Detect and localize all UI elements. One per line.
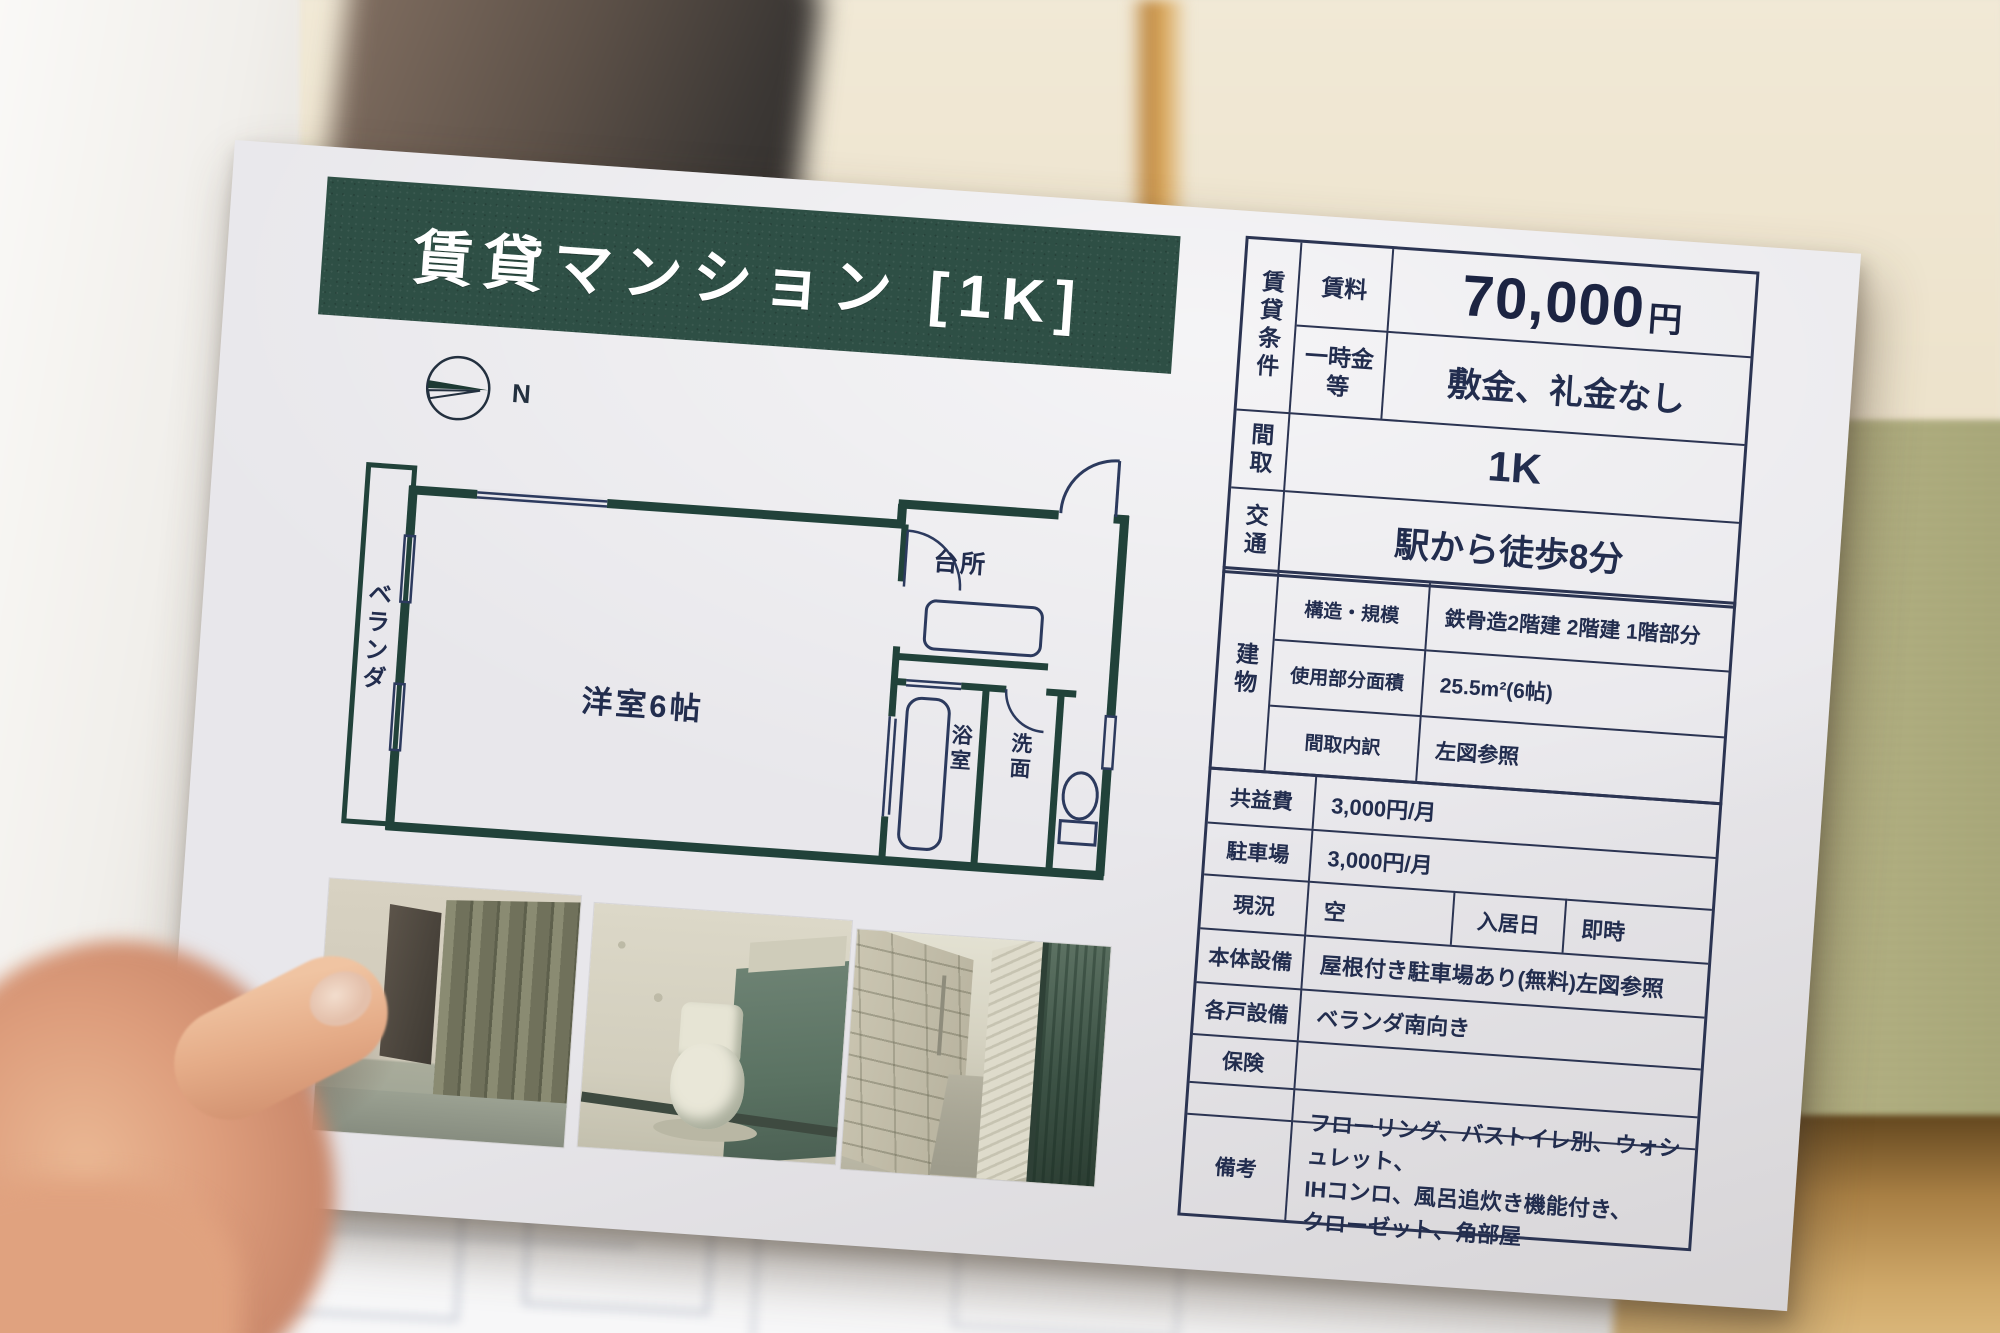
photo-of-rental-flyer: 賃貸マンション [1K] N [0, 0, 2000, 1333]
floor-plan-drawing [332, 390, 1144, 898]
status-value: 空 [1306, 881, 1455, 945]
main-equipment-label: 本体設備 [1197, 927, 1307, 988]
plan-label-bath: 浴室 [943, 723, 976, 775]
unit-equipment-label: 各戸設備 [1193, 981, 1302, 1040]
plan-label-washroom: 洗面 [1002, 731, 1035, 783]
deposit-label: 一時金等 [1291, 325, 1389, 419]
rent-amount: 70,000 [1460, 262, 1648, 342]
remarks-label: 備考 [1180, 1113, 1293, 1220]
movein-label: 入居日 [1452, 891, 1567, 953]
exterior-photo-passage [841, 929, 1111, 1186]
floor-plan: ベランダ 洋室6帖 台所 浴室 洗面 [332, 390, 1144, 898]
building-table: 建物 構造・規模 鉄骨造2階建 2階建 1階部分 使用部分面積 25.5m²(6… [1208, 566, 1736, 805]
interior-photo-toilet [578, 903, 852, 1164]
thumb-nail [300, 961, 381, 1036]
parking-label: 駐車場 [1204, 822, 1313, 881]
rental-flyer: 賃貸マンション [1K] N [161, 140, 1861, 1311]
flyer-title: 賃貸マンション [1K] [410, 208, 1088, 342]
insurance-label: 保険 [1190, 1033, 1299, 1088]
details-table: 共益費 3,000円/月 駐車場 3,000円/月 現況 空 入居日 即時 本体… [1177, 766, 1722, 1251]
remarks-value: フローリング、バストイレ別、ウォシュレット、 IHコンロ、風呂追炊き機能付き、 … [1286, 1120, 1695, 1248]
structure-label: 構造・規模 [1275, 573, 1431, 649]
status-label: 現況 [1200, 873, 1310, 934]
layout-detail-label: 間取内訳 [1266, 705, 1422, 781]
movein-value: 即時 [1564, 899, 1712, 963]
layout-label: 間取 [1231, 409, 1290, 491]
access-label: 交通 [1225, 486, 1285, 574]
rent-unit: 円 [1647, 291, 1684, 342]
title-banner: 賃貸マンション [1K] [318, 177, 1181, 374]
common-fee-label: 共益費 [1208, 770, 1317, 829]
rental-conditions-table: 賃貸条件 賃料 70,000 円 一時金等 敷金、礼金なし 間取 1K 交通 駅… [1222, 236, 1759, 609]
area-label: 使用部分面積 [1270, 639, 1426, 715]
rent-label: 賃料 [1297, 243, 1394, 331]
